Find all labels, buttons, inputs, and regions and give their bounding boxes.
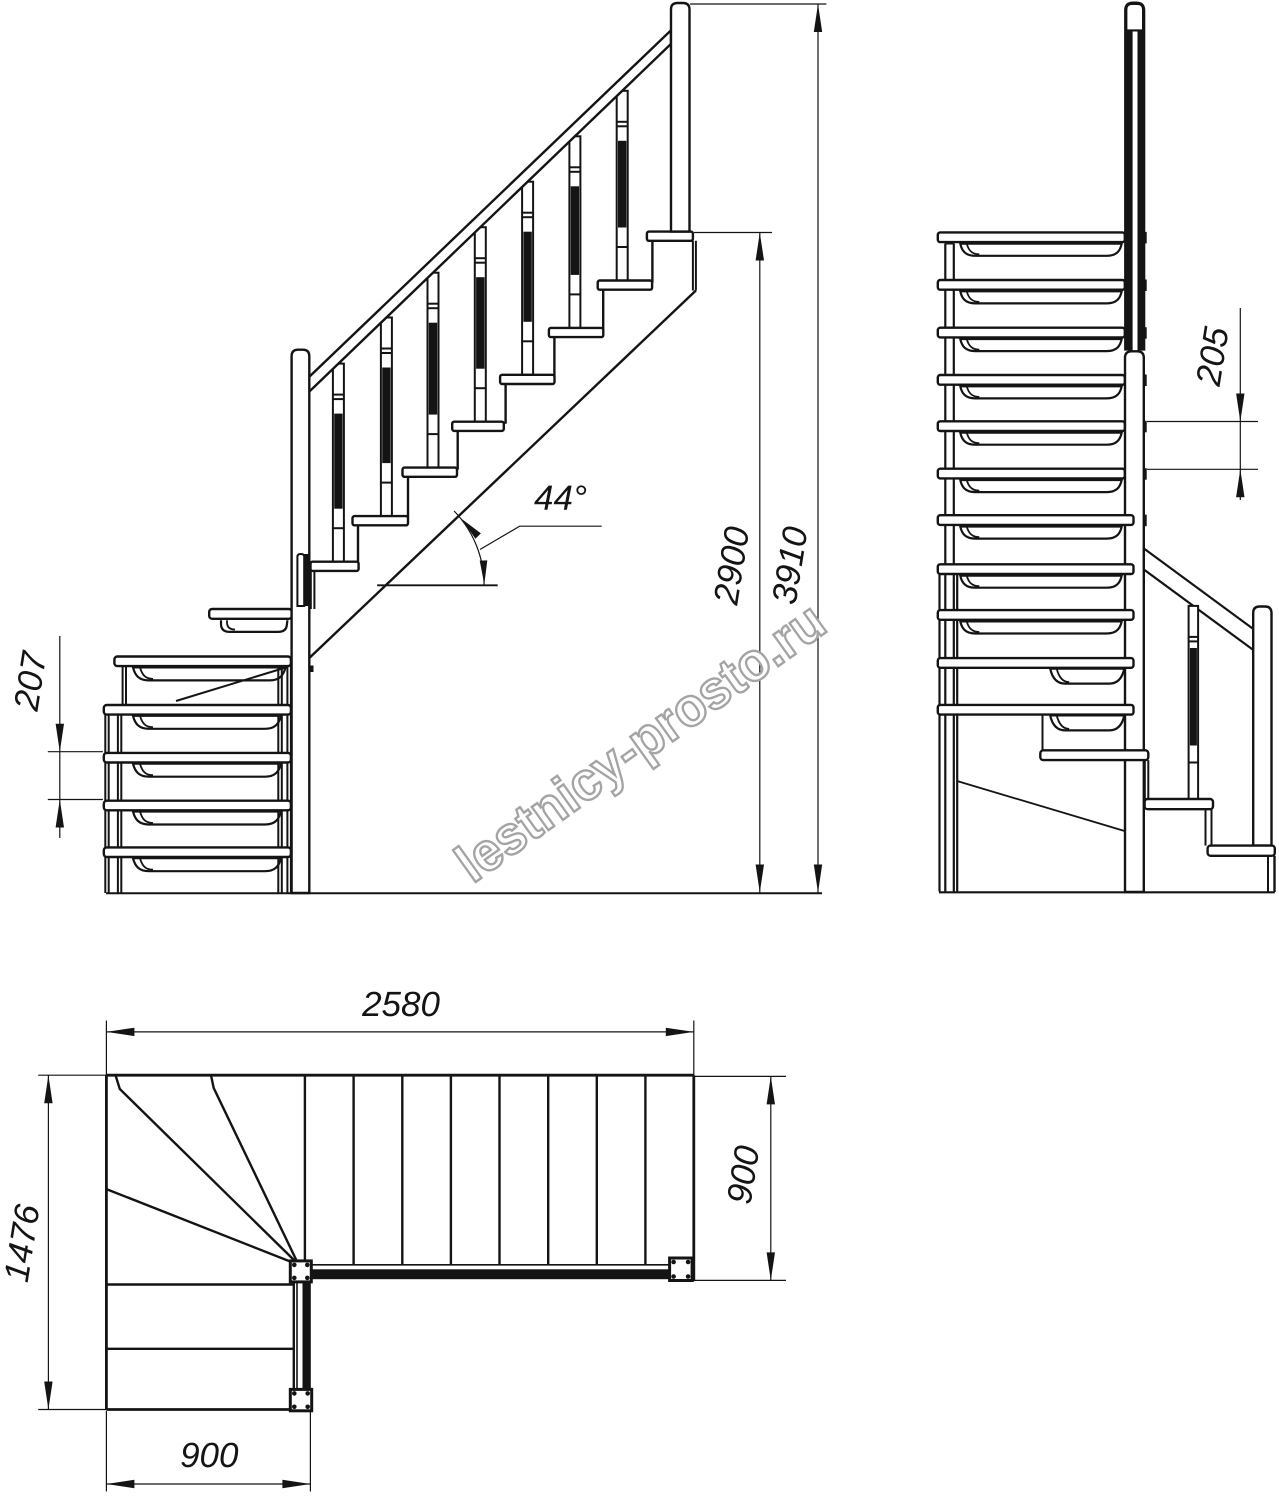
svg-text:2580: 2580 [361, 985, 440, 1024]
svg-text:900: 900 [180, 1436, 239, 1475]
svg-text:44°: 44° [534, 479, 587, 518]
